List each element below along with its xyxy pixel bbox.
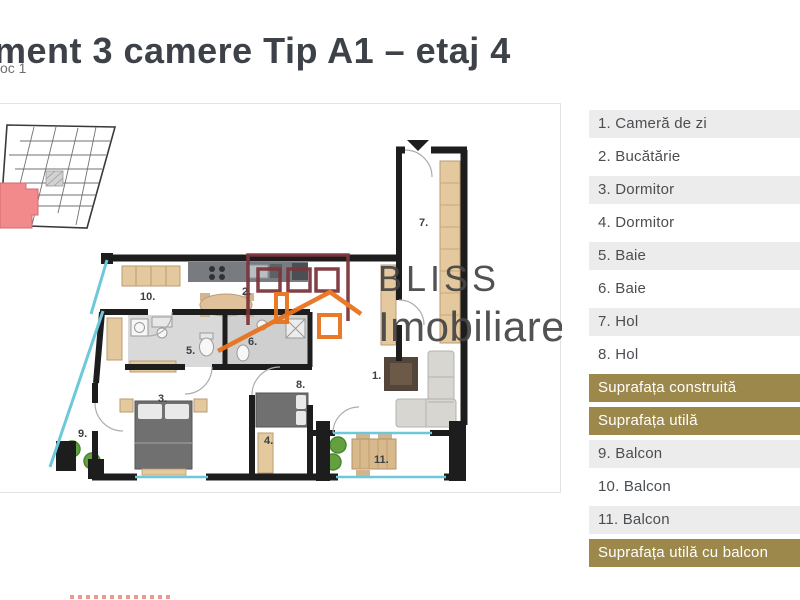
legend-room-row: 6. Baie bbox=[589, 275, 800, 303]
page-subtitle: oc 1 bbox=[0, 60, 26, 76]
legend-room-row: 2. Bucătărie bbox=[589, 143, 800, 171]
room-number-label: 8. bbox=[296, 379, 305, 391]
cutoff-footer-text bbox=[70, 595, 170, 599]
watermark-brand-line1: BLISS bbox=[378, 258, 500, 299]
legend-room-row: 11. Balcon bbox=[589, 506, 800, 534]
legend-room-row: 9. Balcon bbox=[589, 440, 800, 468]
legend-room-row: 8. Hol bbox=[589, 341, 800, 369]
legend-room-row: 4. Dormitor bbox=[589, 209, 800, 237]
room-legend: 1. Cameră de zi2. Bucătărie3. Dormitor4.… bbox=[589, 110, 800, 572]
room-number-label: 11. bbox=[374, 454, 389, 466]
watermark-text: BLISS Imobiliare bbox=[378, 258, 562, 350]
legend-room-row: 5. Baie bbox=[589, 242, 800, 270]
room-number-label: 10. bbox=[140, 291, 155, 303]
floorplan-image: 1.2.3.4.5.6.7.8.9.10.11. BLISS Imobiliar… bbox=[0, 103, 562, 494]
legend-total-row: Suprafața construită bbox=[589, 374, 800, 402]
room-number-label: 6. bbox=[248, 336, 257, 348]
watermark-brand-line2: Imobiliare bbox=[378, 303, 562, 350]
page-title: ment 3 camere Tip A1 – etaj 4 bbox=[0, 30, 511, 72]
room-number-label: 3. bbox=[158, 393, 167, 405]
legend-total-row: Suprafața utilă bbox=[589, 407, 800, 435]
room-number-label: 1. bbox=[372, 370, 381, 382]
legend-room-row: 10. Balcon bbox=[589, 473, 800, 501]
site-plan-highlighted-unit bbox=[0, 183, 38, 228]
room-number-label: 4. bbox=[264, 435, 273, 447]
room-number-label: 5. bbox=[186, 345, 195, 357]
legend-total-row: Suprafața utilă cu balcon bbox=[589, 539, 800, 567]
plant-icon bbox=[64, 437, 346, 470]
room-number-label: 9. bbox=[78, 428, 87, 440]
legend-room-row: 7. Hol bbox=[589, 308, 800, 336]
legend-room-row: 1. Cameră de zi bbox=[589, 110, 800, 138]
site-plan-minimap bbox=[0, 125, 115, 228]
legend-room-row: 3. Dormitor bbox=[589, 176, 800, 204]
room-number-label: 7. bbox=[419, 217, 428, 229]
